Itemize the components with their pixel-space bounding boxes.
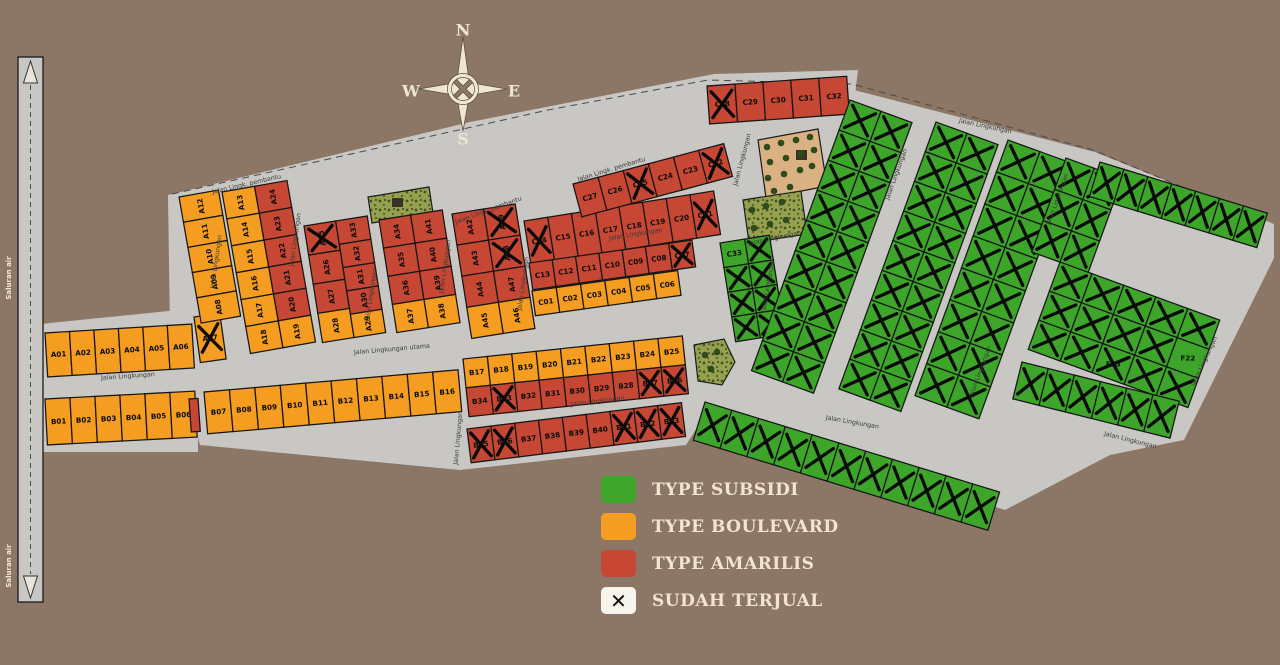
lot-label: C31 xyxy=(798,93,814,103)
lot-label: B25 xyxy=(663,346,679,357)
lot-label: B01 xyxy=(51,416,67,426)
legend-label-sold: SUDAH TERJUAL xyxy=(652,591,823,611)
lot-label: B15 xyxy=(414,389,430,399)
shed xyxy=(392,198,403,207)
lot-label: B02 xyxy=(76,415,92,425)
amarilis-swatch-icon xyxy=(601,550,636,577)
tree-icon xyxy=(798,151,805,158)
lot-label: B16 xyxy=(439,387,455,397)
lot-label: B39 xyxy=(568,427,584,438)
legend-item-amarilis: TYPE AMARILIS xyxy=(601,550,839,577)
block-row-B01-B06: B01B02B03B04B05B06 xyxy=(45,391,197,445)
compass-letter-n: N xyxy=(456,21,471,40)
lot-label: B32 xyxy=(520,391,536,402)
tree-icon xyxy=(767,221,774,228)
legend: TYPE SUBSIDI TYPE BOULEVARD TYPE AMARILI… xyxy=(601,476,839,624)
tree-icon xyxy=(764,144,771,151)
legend-item-sold: ✕ SUDAH TERJUAL xyxy=(601,587,839,614)
lot-label: B40 xyxy=(592,424,608,435)
lot-label: B07 xyxy=(210,407,226,417)
lot-label: B23 xyxy=(615,351,631,362)
lot-label: B12 xyxy=(337,396,353,406)
lot-label: B13 xyxy=(363,393,379,403)
lot-label: B24 xyxy=(639,349,655,360)
compass-letter-w: W xyxy=(401,82,421,101)
lot-label: C29 xyxy=(742,97,758,107)
lot-green[interactable] xyxy=(189,398,200,432)
lot-label: B14 xyxy=(388,391,404,401)
lot-label: C32 xyxy=(826,91,842,101)
lot-label: A03 xyxy=(99,346,115,356)
lot-label: B19 xyxy=(517,362,533,373)
lot-label: B38 xyxy=(544,430,560,441)
lot-label: B05 xyxy=(151,411,167,421)
tree-icon xyxy=(797,167,804,174)
lot-label: B11 xyxy=(312,398,328,408)
lot-label: B08 xyxy=(236,404,252,414)
lot-label: B29 xyxy=(593,383,609,394)
lot-label: B03 xyxy=(101,414,117,424)
lot-label: B22 xyxy=(590,354,606,365)
tree-icon xyxy=(793,137,800,144)
legend-label-amarilis: TYPE AMARILIS xyxy=(652,554,814,574)
lot-label: B17 xyxy=(469,367,485,378)
tree-icon xyxy=(708,366,715,373)
tree-icon xyxy=(778,140,785,147)
lot-label: A01 xyxy=(51,349,67,359)
lot-label: A04 xyxy=(124,345,140,355)
lot-label: B10 xyxy=(287,400,303,410)
tree-icon xyxy=(702,352,709,359)
tree-icon xyxy=(783,155,790,162)
block-row-A01-A06: A01A02A03A04A05A06 xyxy=(45,324,194,377)
sold-x-swatch-icon: ✕ xyxy=(601,587,636,614)
compass-letter-e: E xyxy=(508,82,520,101)
lot-label: B31 xyxy=(545,388,561,399)
lot-label: A06 xyxy=(173,342,189,352)
tree-icon xyxy=(779,199,786,206)
compass-spike xyxy=(419,83,460,95)
siteplan-stage: Saluran airSaluran airA01A02A03A04A05A06… xyxy=(0,0,1280,665)
block-lot-utility xyxy=(189,398,200,432)
boulevard-swatch-icon xyxy=(601,513,636,540)
lot-label: B21 xyxy=(566,357,582,368)
lot-label: B28 xyxy=(618,380,634,391)
legend-label-boulevard: TYPE BOULEVARD xyxy=(652,517,839,537)
compass-spike xyxy=(466,83,507,95)
tree-icon xyxy=(767,159,774,166)
lot-label: B30 xyxy=(569,385,585,396)
legend-label-subsidi: TYPE SUBSIDI xyxy=(652,480,799,500)
tree-icon xyxy=(765,175,772,182)
waterway-label: Saluran air xyxy=(5,544,13,588)
tree-icon xyxy=(809,163,816,170)
lot-label: B18 xyxy=(493,364,509,375)
lot-label: B04 xyxy=(126,412,142,422)
tree-icon xyxy=(714,349,721,356)
lot-label: C30 xyxy=(770,95,786,105)
tree-icon xyxy=(751,225,758,232)
legend-item-subsidi: TYPE SUBSIDI xyxy=(601,476,839,503)
lot-label: B06 xyxy=(176,410,192,420)
lot-label: A02 xyxy=(75,348,91,358)
legend-item-boulevard: TYPE BOULEVARD xyxy=(601,513,839,540)
tree-icon xyxy=(771,188,778,195)
lot-label: F22 xyxy=(1180,354,1195,363)
compass-letter-s: S xyxy=(457,130,469,149)
waterway-label: Saluran air xyxy=(5,256,13,300)
tree-icon xyxy=(787,184,794,191)
tree-icon xyxy=(783,217,790,224)
tree-icon xyxy=(763,203,770,210)
lot-label: A05 xyxy=(148,343,164,353)
lot-label: B09 xyxy=(261,402,277,412)
lot-label: B20 xyxy=(542,359,558,370)
tree-icon xyxy=(811,147,818,154)
tree-icon xyxy=(807,134,814,141)
tree-icon xyxy=(781,171,788,178)
lot-label: B37 xyxy=(520,433,536,444)
tree-icon xyxy=(749,207,756,214)
subsidi-swatch-icon xyxy=(601,476,636,503)
lot-label: B34 xyxy=(472,396,488,407)
